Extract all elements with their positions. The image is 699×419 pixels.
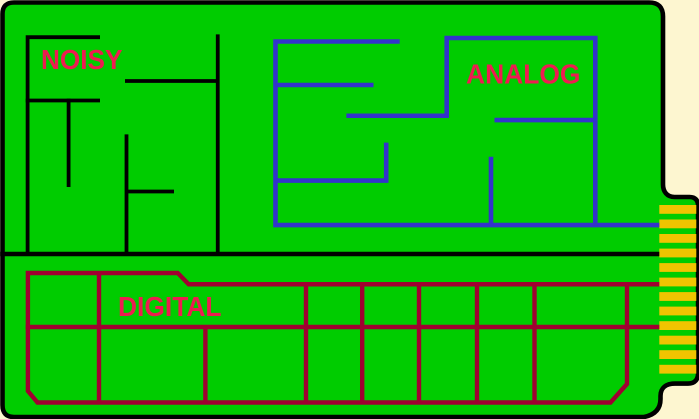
svg-text:NOISY: NOISY	[41, 44, 123, 75]
svg-text:DIGITAL: DIGITAL	[118, 291, 222, 322]
svg-text:ANALOG: ANALOG	[466, 59, 581, 90]
